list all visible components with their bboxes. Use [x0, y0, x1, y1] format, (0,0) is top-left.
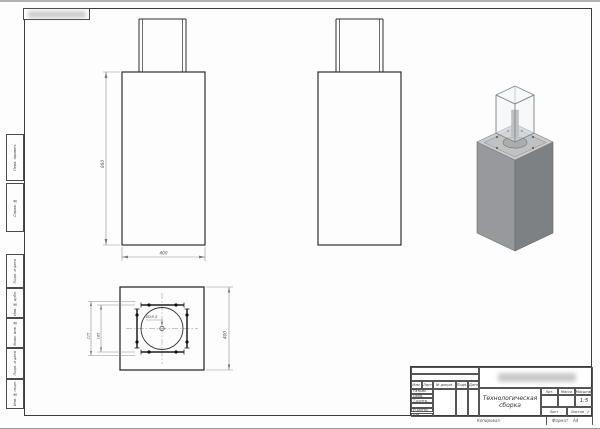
dim-hole-diameter: Ø28,5 [145, 314, 158, 319]
tb-col-sign: Подп. [456, 381, 468, 389]
footer-format-label: Формат [552, 418, 568, 423]
tb-mass-value [558, 395, 575, 407]
tb-date-col-body [468, 389, 479, 417]
tb-row-utv: Утв. [411, 413, 433, 418]
drawing-sheet: Перв. примен. Справ. № Подп. и дата Инв.… [0, 0, 600, 428]
tb-sheets-cell: Листов 1 [567, 407, 593, 417]
dim-rail-inner-185: 185 [97, 332, 101, 340]
footer-copied: Копировал [477, 418, 500, 423]
tb-lit-label: Лит. [541, 388, 558, 395]
dim-plan-400: 400 [223, 331, 228, 339]
dim-width-400: 400 [160, 251, 168, 256]
tb-scale-label: Масштаб [575, 388, 593, 395]
tb-lit-value [541, 395, 558, 407]
tb-col-date: Дата [468, 381, 479, 389]
tb-col-list: Лист [422, 381, 433, 389]
title-block: Изм. Лист № докум. Подп. Дата Разраб. Пр… [410, 366, 592, 416]
plan-view: 215 185 400 Ø28,5 [87, 287, 234, 370]
tb-mass-label: Масса [558, 388, 575, 395]
tb-doc-col-body [433, 389, 456, 417]
dim-rail-outer-215: 215 [87, 332, 91, 340]
tb-ext-row [411, 367, 479, 374]
tb-ext-row [411, 374, 479, 381]
tb-scale-value: 1:5 [575, 395, 593, 407]
iso-3d-view [477, 86, 553, 251]
tb-col-izm: Изм. [411, 381, 422, 389]
tb-sheet-cell: Лист [541, 407, 567, 417]
footer-divider-right [592, 416, 593, 425]
drawing-canvas: 860 400 [0, 2, 600, 428]
redacted-designation [498, 373, 576, 382]
footer-divider [546, 416, 547, 425]
front-view-2 [318, 19, 401, 245]
front-view-1 [122, 19, 205, 245]
tb-designation-cell [479, 367, 593, 388]
dim-height-860: 860 [100, 160, 105, 168]
tb-title: Технологическая сборка [479, 388, 541, 417]
tb-sign-col-body [456, 389, 468, 417]
footer-format-value: A4 [573, 418, 578, 423]
iso-glass-box [496, 86, 534, 142]
tb-col-doc: № докум. [433, 381, 456, 389]
